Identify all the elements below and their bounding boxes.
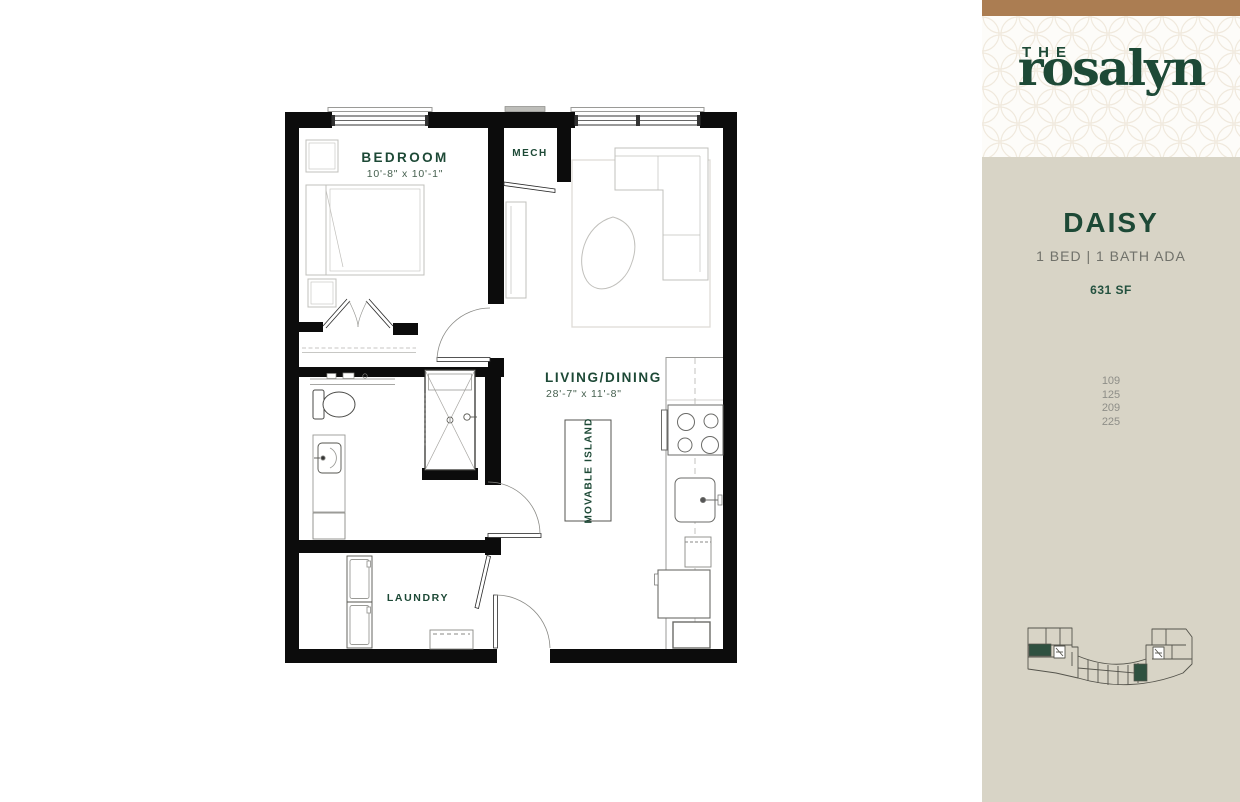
movable-island-label: MOVABLE ISLAND <box>584 417 595 523</box>
brand-logo: THE rosalyn <box>982 16 1240 157</box>
unit-number: 125 <box>982 389 1240 403</box>
building-outline <box>1028 628 1192 685</box>
nightstand <box>308 279 336 307</box>
sidebar: THE rosalyn DAISY 1 BED | 1 BATH ADA 631… <box>982 0 1240 802</box>
bath-door <box>488 482 541 538</box>
floorplan-svg: BEDROOM 10'-8" x 10'-1" MECH LIVING/DINI… <box>283 105 739 667</box>
bath-cabinet <box>313 513 345 539</box>
unit-number: 225 <box>982 416 1240 430</box>
top-accent-bar <box>982 0 1240 16</box>
coffee-table <box>582 217 635 289</box>
laundry-cabinet <box>430 630 473 649</box>
cabinet <box>673 622 710 648</box>
mech-door <box>504 182 555 193</box>
range <box>662 405 724 455</box>
bedroom-label: BEDROOM <box>361 150 448 165</box>
bed <box>306 185 424 275</box>
logo-wordmark: rosalyn <box>982 42 1240 96</box>
window-sill <box>328 108 432 112</box>
window-sill <box>571 108 704 112</box>
refrigerator <box>655 570 711 618</box>
unit-specs: 1 BED | 1 BATH ADA <box>982 248 1240 264</box>
kitchen <box>655 357 724 649</box>
living-dining-label: LIVING/DINING <box>545 370 662 385</box>
sink <box>675 478 722 522</box>
dishwasher <box>685 537 711 567</box>
bedroom-door <box>437 308 490 362</box>
living-furniture <box>572 148 710 327</box>
lavatory <box>313 435 345 512</box>
nightstand <box>306 140 338 172</box>
floorplan-area: BEDROOM 10'-8" x 10'-1" MECH LIVING/DINI… <box>0 0 982 802</box>
mech-label: MECH <box>512 148 547 159</box>
tv-console <box>506 202 526 298</box>
bedroom-dims: 10'-8" x 10'-1" <box>367 168 444 180</box>
shower <box>425 370 477 470</box>
unit-number: 209 <box>982 402 1240 416</box>
unit-number: 109 <box>982 375 1240 389</box>
closet-shelf <box>302 348 416 353</box>
entry-door <box>494 595 551 648</box>
laundry-door <box>475 556 491 609</box>
toilet <box>313 390 355 419</box>
laundry-label: LAUNDRY <box>387 592 449 604</box>
living-dining-dims: 28'-7" x 11'-8" <box>546 388 622 400</box>
bathroom <box>310 370 477 539</box>
flyer-page: BEDROOM 10'-8" x 10'-1" MECH LIVING/DINI… <box>0 0 1240 802</box>
unit-info: DAISY 1 BED | 1 BATH ADA 631 SF 109 125 … <box>982 157 1240 429</box>
unit-numbers: 109 125 209 225 <box>982 375 1240 429</box>
mech-vent <box>505 107 545 112</box>
building-key-plan <box>1020 618 1198 693</box>
unit-name: DAISY <box>982 207 1240 239</box>
unit-area: 631 SF <box>982 283 1240 297</box>
washer-dryer <box>347 556 372 648</box>
